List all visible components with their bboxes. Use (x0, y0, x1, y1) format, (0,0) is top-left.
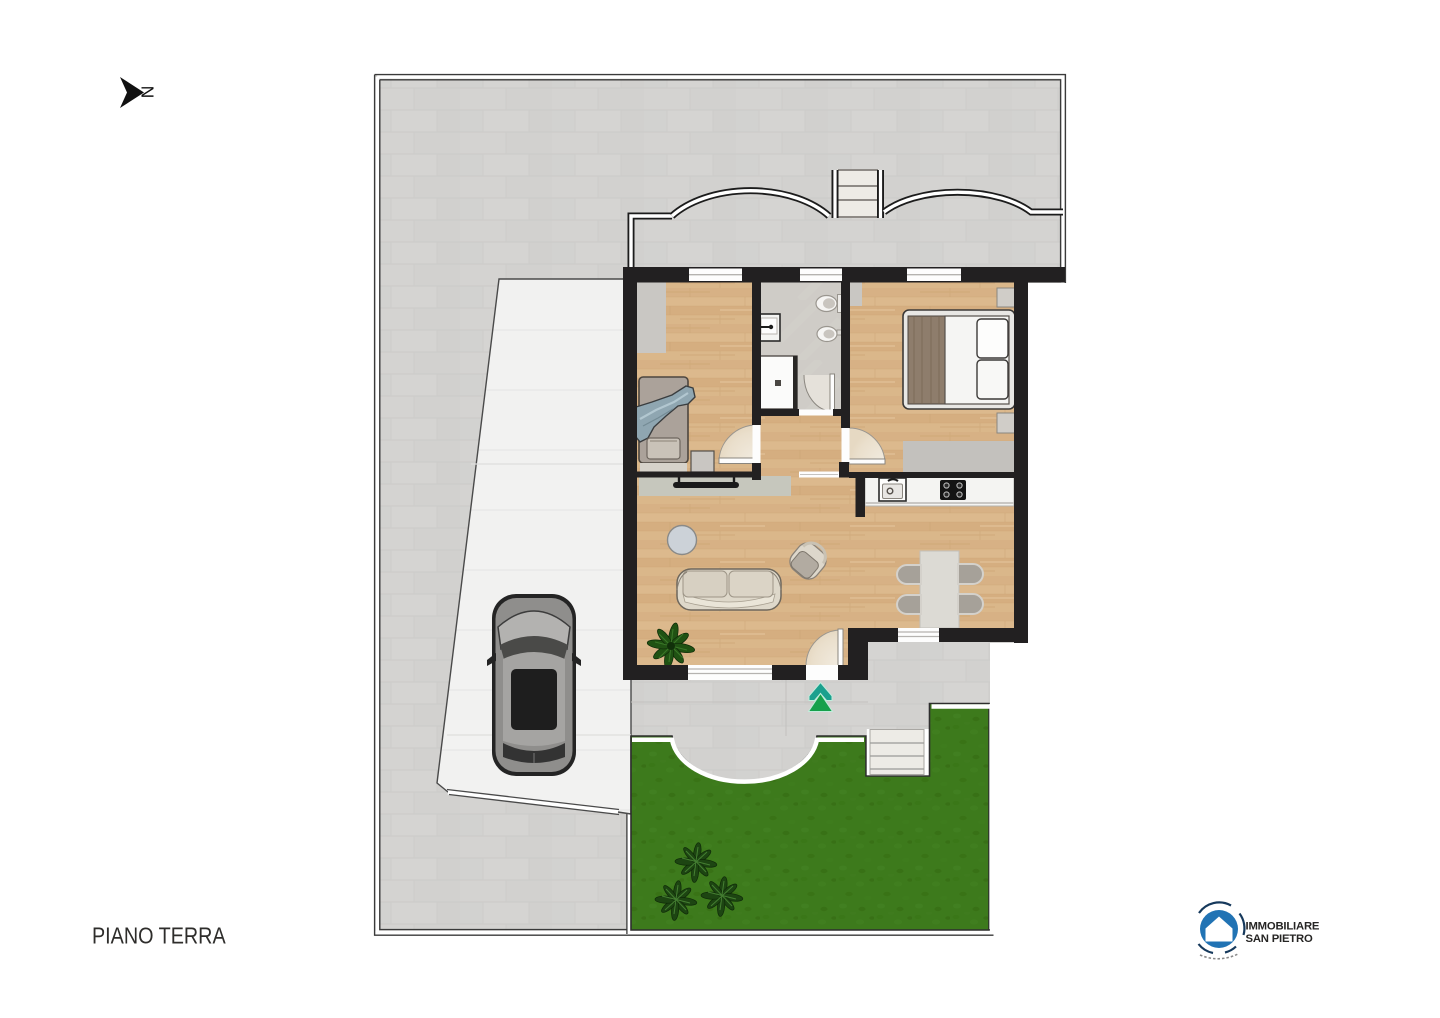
svg-text:IMMOBILIARE: IMMOBILIARE (1246, 921, 1320, 933)
svg-text:SAN PIETRO: SAN PIETRO (1246, 933, 1313, 945)
svg-text:PIANO TERRA: PIANO TERRA (92, 923, 226, 949)
svg-text:N: N (138, 86, 158, 99)
